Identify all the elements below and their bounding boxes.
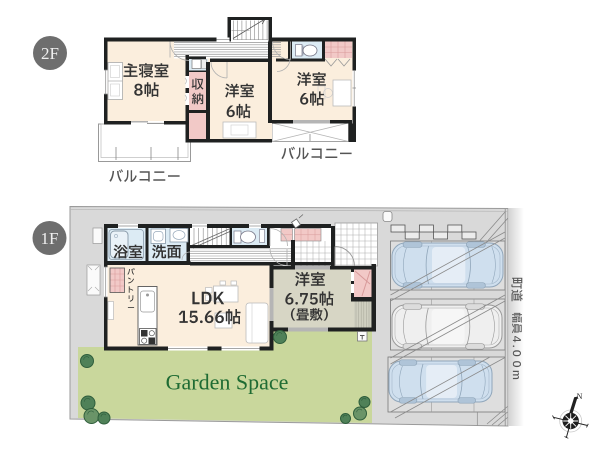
svg-text:N: N <box>577 392 583 401</box>
svg-text:2F: 2F <box>41 44 59 63</box>
svg-text:Garden Space: Garden Space <box>166 370 289 395</box>
svg-text:1F: 1F <box>41 229 59 248</box>
